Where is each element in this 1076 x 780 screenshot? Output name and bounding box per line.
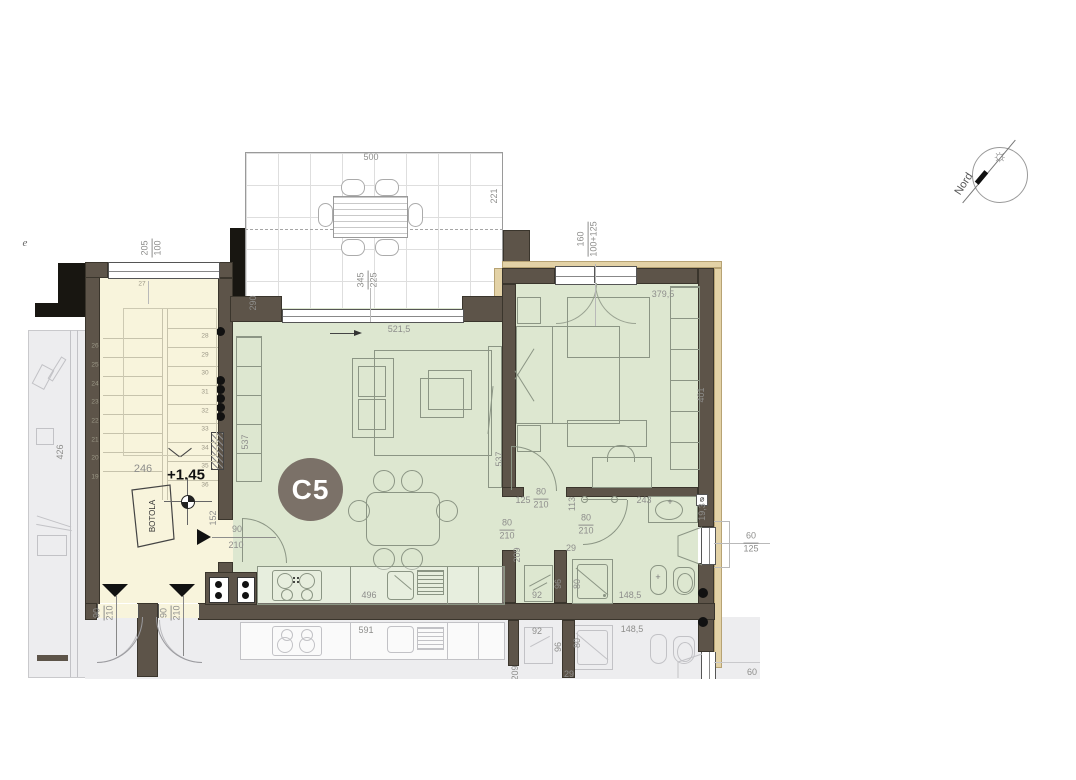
neighbor-wall-stub [508,620,519,666]
dining-chair [348,500,370,522]
counter-divider [350,566,351,605]
w-stair-top [85,262,108,278]
bath-window-dim-line [714,543,770,544]
bath-door-pivot [581,496,588,503]
living-window-arrow-head [354,330,362,336]
step-number: 19 [91,474,98,481]
dim-bedroom-width: 379,5 [652,290,675,300]
dim-neighbor-shower: 80 [573,638,583,648]
step-number: 33 [201,426,208,433]
unit-badge: C5 [278,458,343,521]
dim-terrace-depth: 345225 [357,270,380,289]
toilet-bowl [677,573,693,593]
leader-line [595,264,596,326]
dim-kitchen: 496 [361,591,376,601]
terrace-chair [375,239,399,256]
leader-line [148,281,149,304]
neighbor-window-dim-line [714,662,760,663]
dining-chair [401,470,423,492]
counter-divider [478,566,479,605]
step-number: 22 [91,418,98,425]
bidet-mark: + [655,573,660,583]
dim-bath-length: 148,5 [619,591,642,601]
terrace-chair [318,203,333,227]
floor-plan-canvas: 27 26 25 24 23 22 21 20 19 28 29 30 31 3… [0,0,1076,780]
bedroom-cabinet [567,297,650,358]
dim-terrace-right: 221 [490,188,500,203]
drainer [417,570,444,595]
dim-exit-door: 90210 [93,605,116,620]
exit-arrow-down [102,584,128,597]
neighbor-window-splay [672,650,704,680]
neighbor-fixture [37,535,67,556]
w-black-corner [58,263,88,317]
dim-shower: 80 [573,579,583,589]
dim-living-left: 537 [241,434,251,449]
elevation-label: +1.45 [167,467,205,484]
stove-knob [293,577,295,579]
step-number: 34 [201,445,208,452]
dim-neighbor-window: 60 [747,668,757,678]
bed-divider [552,326,553,424]
survey-marker [181,495,195,509]
terrace-chair [408,203,423,227]
dim-hall-depth: 209 [513,547,523,562]
north-label: Nord [952,171,975,198]
stove-knob [297,577,299,579]
shaft-dot [215,581,222,588]
w-black-corner [35,303,58,317]
exit-arrow-down [169,584,195,597]
living-terrace-window [282,309,464,323]
bath-window-dim-line [729,522,730,568]
w-stair-top [218,262,233,278]
botola-hatch: BOTOLA [122,483,178,553]
nightstand [517,425,541,452]
botola-label: BOTOLA [148,499,157,532]
column-dot [698,617,708,627]
neighbor-wall-line [70,330,71,677]
dim-terrace-width: 500 [363,153,378,163]
step-number: 27 [138,281,145,288]
sofa-cushion [358,366,386,397]
bath-door-pivot [611,496,618,503]
dim-neighbor-wash: 92 [532,627,542,637]
leader-line [370,288,371,322]
dim-bedroom-depth: 401 [697,387,707,402]
bath-door-leaf [583,499,627,500]
step-number: 31 [201,389,208,396]
shower-drain [603,594,606,597]
kitchen-sink [387,571,414,600]
dim-neighbor-length: 148,5 [621,625,644,635]
sun-icon: ☼ [992,146,1008,166]
dim-living-window: 521,5 [388,325,411,335]
dining-chair [436,500,458,522]
neighbor-sink [387,626,414,653]
w-bedroom-top [502,268,555,284]
w-bedroom-top [635,268,698,284]
dim-bath-niche: 96 [554,579,564,589]
terrace-chair [341,179,365,196]
bottom-crop [0,679,1076,780]
dim-terrace-left: 290 [249,295,259,310]
shaft-dot [242,592,249,599]
dim-neighbor-kitchen: 591 [358,626,373,636]
neighbor-wall-strip [37,655,68,661]
step-number: 25 [91,362,98,369]
bath-window-dim-line [714,567,730,568]
neighbor-bidet [650,634,667,664]
step-number: 24 [91,381,98,388]
dim-living-right: 537 [495,451,505,466]
step-number: 32 [201,408,208,415]
neighbor-burner [281,629,293,641]
terrace-table [333,196,408,238]
stove-knob [293,581,295,583]
burner [299,573,315,589]
step-number: 23 [91,399,98,406]
step-number: 21 [91,437,98,444]
unit-badge-label: C5 [292,474,330,506]
terrace-chair [375,179,399,196]
dim-entry-wall: 152 [209,510,219,525]
dim-hall-wall2: 113 [568,497,578,511]
entry-arrow-right [197,529,211,545]
dim-bedroom-door: 80210 [533,488,548,511]
north-compass: ☼ Nord [940,130,1060,230]
w-bottom-pier [137,603,158,677]
column-dot [698,588,708,598]
dim-bath-right-wall: 19,3 [698,503,708,521]
bedroom-bench [567,420,647,447]
dim-stair-window: 205100 [141,238,164,257]
edge-letter: e [23,237,28,249]
bedroom-door-leaf [511,446,512,490]
step-number: 28 [201,333,208,340]
step-number: 29 [201,352,208,359]
dim-bath-door: 80210 [578,514,593,537]
counter-divider [447,566,448,605]
w-hall-stub [554,550,567,603]
nightstand [517,297,541,324]
step-number: 26 [91,343,98,350]
step-number: 20 [91,455,98,462]
dim-stair-width: 246 [134,463,152,475]
shaft-dot [242,581,249,588]
burner [281,589,293,601]
bath-window-splay [672,521,704,571]
shaft-dot [215,592,222,599]
neighbor-burner [301,629,313,641]
stairwell-window [108,262,220,279]
dim-entry-door-den: 210 [228,541,243,551]
neighbor-counter-divider [478,622,479,660]
neighbor-wall-line [77,330,78,677]
dim-neighbor-depth: 426 [56,444,66,459]
wardrobe [670,286,700,470]
neighbor-counter-divider [350,622,351,660]
neighbor-fixture [36,428,54,445]
w-bottom [198,603,715,620]
dim-wash: 92 [532,591,542,601]
dim-neighbor-niche: 96 [554,642,564,652]
burner [277,573,293,589]
step-number: 30 [201,370,208,377]
dim-hall-stub: 29 [566,544,576,554]
burner [301,589,313,601]
dining-chair [373,470,395,492]
faucet-mark: + [667,498,672,508]
sofa-cushion [358,399,386,430]
dim-desk: 243 [636,496,651,506]
beige-trim [714,268,722,668]
stove-knob [297,581,299,583]
dim-hall-door: 80210 [499,519,514,542]
dim-bedroom-window: 160100+125 [577,221,600,256]
dim-bath-window: 60125 [743,532,758,555]
bath-window-dim-line [714,521,730,522]
neighbor-drainer [417,627,444,650]
terrace-chair [341,239,365,256]
stair-railing [123,308,217,456]
dim-exit-door: 90210 [160,605,183,620]
dim-entry-door-num: 90 [232,525,242,535]
coffee-table [428,370,472,410]
living-window-arrow-line [330,333,356,334]
dim-hall-wall: 125 [515,496,530,506]
desk-chair [607,445,635,462]
w-living-top [462,296,505,322]
neighbor-counter-divider [447,622,448,660]
shelving-unit [236,336,262,482]
dining-table [366,492,440,546]
